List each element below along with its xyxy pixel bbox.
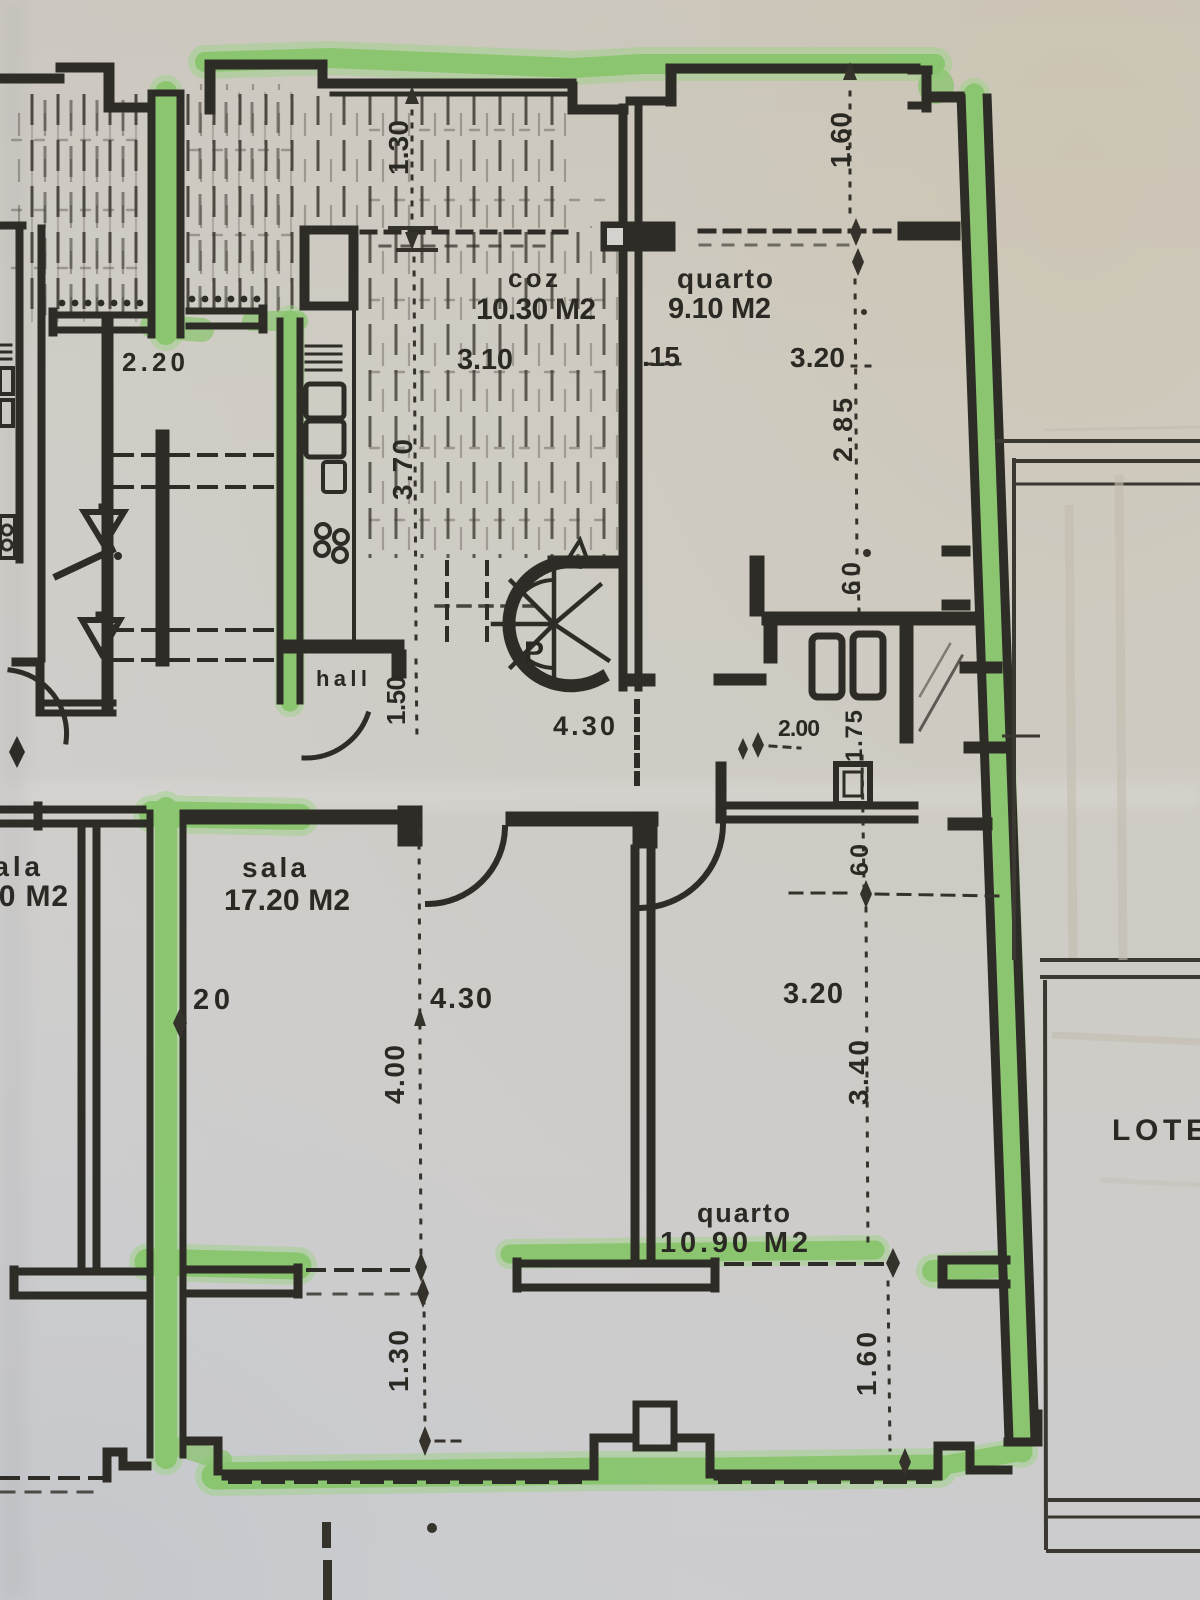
svg-text:3.20: 3.20 [790,342,845,373]
svg-text:quarto: quarto [697,1198,790,1228]
svg-text:4.30: 4.30 [430,983,492,1015]
svg-text:LOTE: LOTE [1112,1114,1200,1147]
svg-text:3.70: 3.70 [387,439,418,500]
svg-text:10.30 M2: 10.30 M2 [476,293,596,326]
svg-text:2.20: 2.20 [122,347,185,377]
svg-text:17.20 M2: 17.20 M2 [224,884,350,917]
svg-text:9.10 M2: 9.10 M2 [668,293,771,325]
svg-text:quarto: quarto [677,263,773,294]
svg-text:1.30: 1.30 [383,120,414,175]
svg-text:1.50: 1.50 [381,676,411,725]
svg-text:1.30: 1.30 [383,1330,414,1392]
svg-text:4.00: 4.00 [379,1045,410,1104]
svg-text:3.10: 3.10 [457,344,513,376]
svg-text:2.00: 2.00 [778,715,820,741]
svg-text:1.60: 1.60 [851,1332,882,1396]
svg-text:10.90 M2: 10.90 M2 [660,1227,808,1259]
svg-text:.15: .15 [642,341,680,372]
svg-text:3.40: 3.40 [843,1040,874,1105]
svg-text:1.60: 1.60 [825,112,856,168]
svg-text:.90 M2: .90 M2 [0,880,68,913]
svg-text:2.85: 2.85 [828,398,858,462]
svg-text:sala: sala [0,851,40,882]
svg-text:sala: sala [242,852,306,883]
svg-text:3.20: 3.20 [783,978,843,1010]
svg-text:P: P [524,636,544,669]
svg-text:coz: coz [508,263,558,293]
svg-text:1.75: 1.75 [841,710,868,762]
svg-text:4.30: 4.30 [553,711,615,741]
